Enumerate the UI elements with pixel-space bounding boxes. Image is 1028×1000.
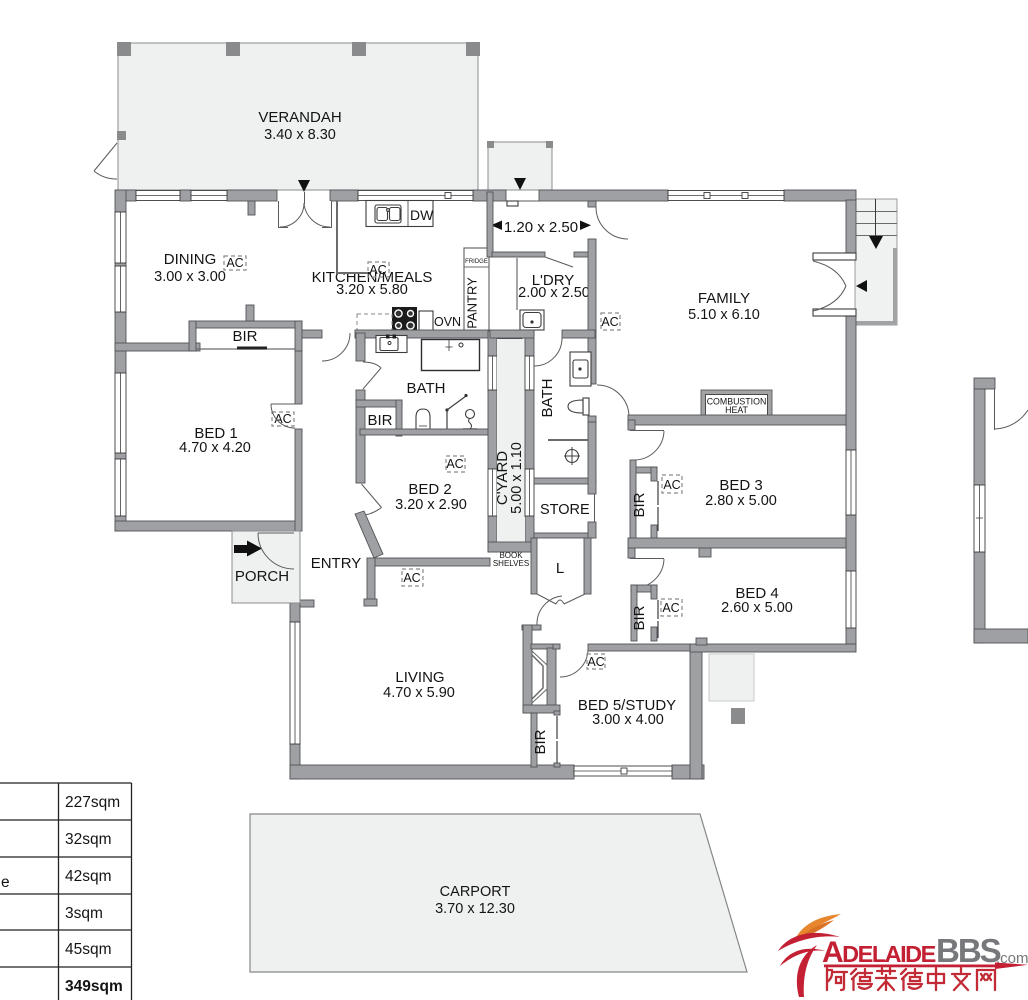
svg-text:42sqm: 42sqm [65,868,112,885]
svg-text:BBS: BBS [936,932,1001,969]
svg-text:2.80 x 5.00: 2.80 x 5.00 [705,493,777,509]
svg-text:227sqm: 227sqm [65,794,120,811]
svg-text:DINING: DINING [164,251,217,268]
svg-text:349sqm: 349sqm [65,978,123,995]
svg-text:AC: AC [662,601,679,615]
svg-text:BIR: BIR [532,729,549,754]
svg-text:AC: AC [226,256,243,270]
svg-text:4.70 x 4.20: 4.70 x 4.20 [179,440,251,456]
svg-text:BATH: BATH [539,379,556,418]
svg-text:BED 3: BED 3 [719,477,762,494]
svg-text:HEAT: HEAT [725,405,748,415]
svg-text:1.20 x 2.50: 1.20 x 2.50 [504,219,578,236]
svg-text:32sqm: 32sqm [65,831,112,848]
svg-text:BIR: BIR [631,492,648,517]
svg-text:2.00 x 2.50: 2.00 x 2.50 [518,285,590,301]
svg-text:3.00 x 3.00: 3.00 x 3.00 [154,269,226,285]
svg-text:AC: AC [601,315,618,329]
svg-text:BED 2: BED 2 [408,481,451,498]
svg-text:3.40 x 8.30: 3.40 x 8.30 [264,127,336,143]
svg-text:BIR: BIR [232,328,257,345]
svg-text:AC: AC [446,457,463,471]
svg-text:3.00 x 4.00: 3.00 x 4.00 [592,712,664,728]
svg-text:e: e [1,874,10,891]
svg-text:PANTRY: PANTRY [465,277,480,329]
svg-text:DW: DW [410,207,434,223]
svg-text:ENTRY: ENTRY [311,555,362,572]
svg-text:3.20 x 2.90: 3.20 x 2.90 [395,497,467,513]
svg-text:AC: AC [587,655,604,669]
svg-text:ADELAIDE: ADELAIDE [822,936,936,969]
svg-text:AC: AC [663,478,680,492]
svg-text:AC: AC [274,412,291,426]
svg-text:VERANDAH: VERANDAH [258,109,341,126]
svg-text:FAMILY: FAMILY [698,290,750,307]
svg-text:AC: AC [369,263,386,277]
svg-text:3sqm: 3sqm [65,905,103,922]
svg-text:STORE: STORE [540,502,590,518]
svg-text:5.00 x 1.10: 5.00 x 1.10 [509,442,525,514]
svg-text:45sqm: 45sqm [65,941,112,958]
svg-text:FRIDGE: FRIDGE [465,259,488,265]
svg-text:SHELVES: SHELVES [493,559,529,568]
svg-text:5.10 x 6.10: 5.10 x 6.10 [688,307,760,323]
svg-text:CARPORT: CARPORT [440,884,511,900]
svg-text:PORCH: PORCH [235,568,289,585]
svg-text:3.70 x 12.30: 3.70 x 12.30 [435,901,515,917]
svg-text:BIR: BIR [367,412,392,429]
svg-text:4.70 x 5.90: 4.70 x 5.90 [383,685,455,701]
svg-text:AC: AC [403,571,420,585]
svg-text:2.60 x 5.00: 2.60 x 5.00 [721,600,793,616]
svg-text:LIVING: LIVING [395,669,444,686]
svg-text:L: L [556,560,564,577]
svg-text:BIR: BIR [631,605,648,630]
svg-text:BATH: BATH [407,380,446,397]
svg-text:3.20 x 5.80: 3.20 x 5.80 [336,282,408,298]
svg-text:OVN: OVN [434,315,461,329]
